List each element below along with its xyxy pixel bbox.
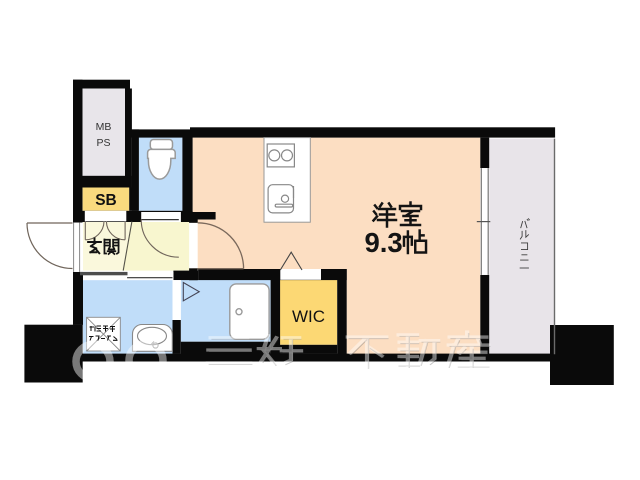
svg-text:9.3: 9.3 — [365, 227, 403, 258]
svg-text:WIC: WIC — [292, 307, 325, 326]
svg-text:MB: MB — [96, 121, 112, 133]
svg-text:SB: SB — [95, 192, 117, 209]
svg-text:PS: PS — [96, 137, 110, 149]
